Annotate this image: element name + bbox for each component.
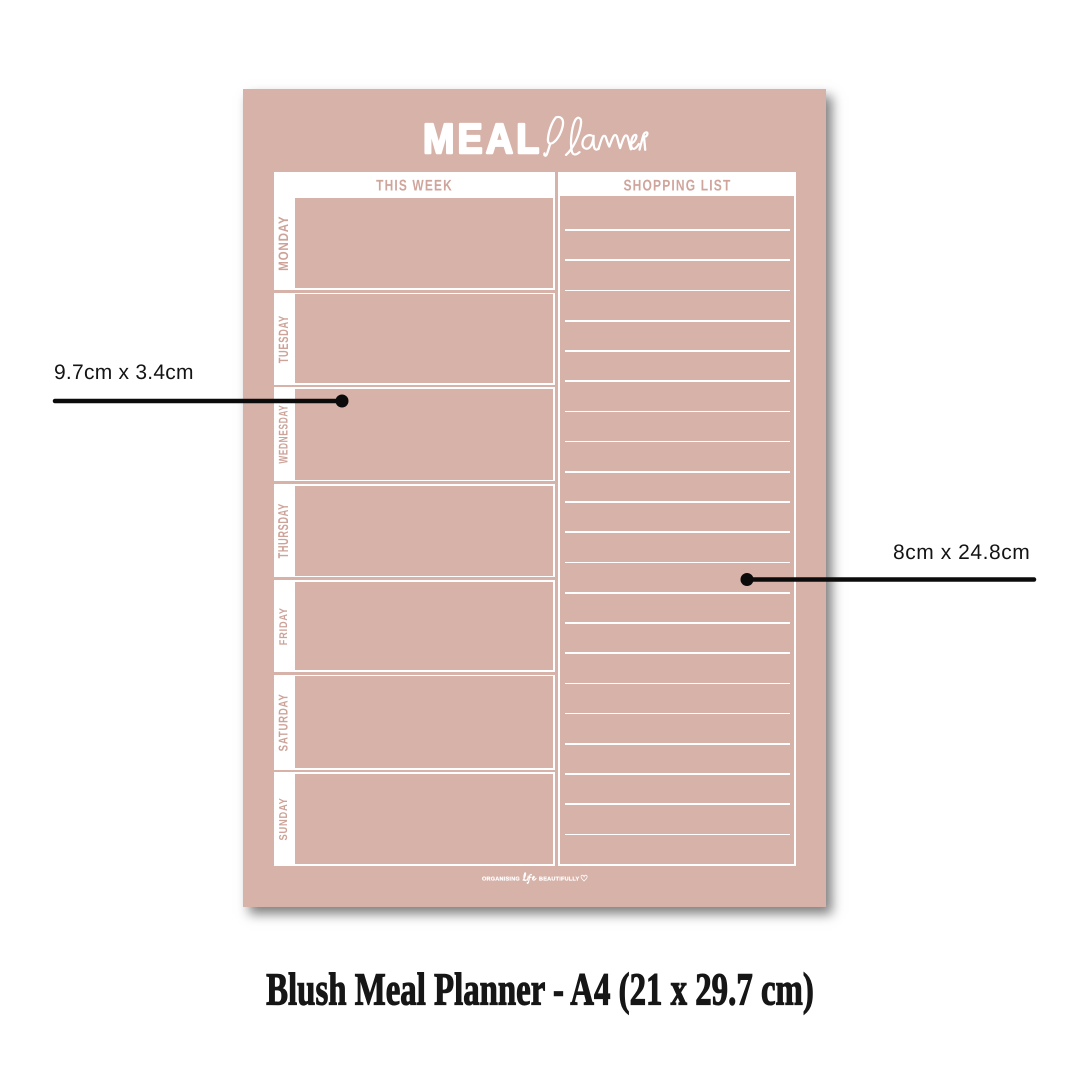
svg-text:SATURDAY: SATURDAY xyxy=(276,693,291,751)
svg-text:THIS WEEK: THIS WEEK xyxy=(376,178,453,195)
svg-text:MONDAY: MONDAY xyxy=(276,216,291,271)
svg-text:8cm x 24.8cm: 8cm x 24.8cm xyxy=(893,541,1030,564)
svg-text:9.7cm x 3.4cm: 9.7cm x 3.4cm xyxy=(54,361,194,384)
svg-text:THURSDAY: THURSDAY xyxy=(276,503,292,558)
svg-text:TUESDAY: TUESDAY xyxy=(276,315,291,363)
svg-text:SUNDAY: SUNDAY xyxy=(278,797,290,840)
svg-text:WEDNESDAY: WEDNESDAY xyxy=(277,405,291,464)
svg-text:FRIDAY: FRIDAY xyxy=(278,607,290,645)
svg-text:MEAL: MEAL xyxy=(423,115,542,159)
svg-text:Blush Meal Planner - A4 (21 x: Blush Meal Planner - A4 (21 x 29.7 cm) xyxy=(266,964,814,1015)
svg-text:SHOPPING LIST: SHOPPING LIST xyxy=(623,178,731,195)
svg-text:BEAUTIFULLY: BEAUTIFULLY xyxy=(539,876,580,882)
svg-text:ORGANISING: ORGANISING xyxy=(482,876,520,882)
